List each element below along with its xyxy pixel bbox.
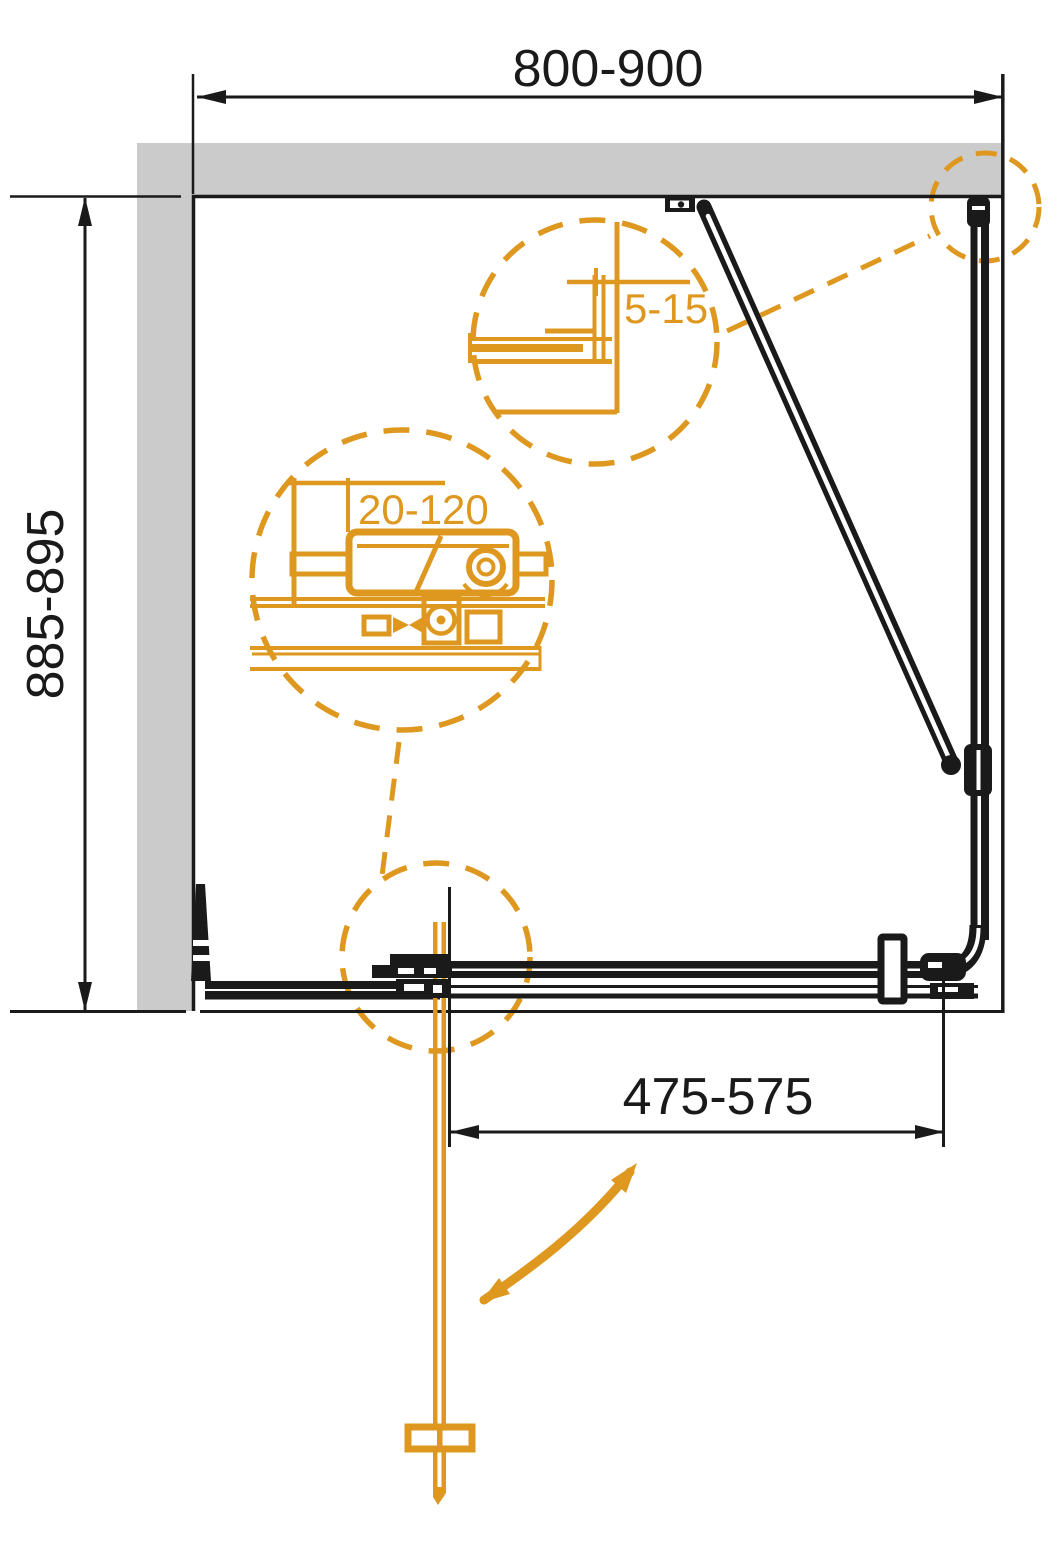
width-dimension-label: 800-900	[513, 40, 704, 98]
technical-drawing-page: 5-15 20-120	[0, 0, 1063, 1545]
door-bottom-tip	[433, 1487, 446, 1505]
wall-gap-dimension-label: 5-15	[624, 285, 708, 332]
door-width-dimension-label: 475-575	[623, 1068, 814, 1126]
panel-top-clamp	[967, 197, 990, 227]
door-swing-arrow	[484, 1172, 630, 1300]
arrowhead-left-icon	[197, 90, 226, 104]
arrowhead-down-icon	[78, 982, 92, 1011]
door-pivot-icon	[941, 755, 961, 775]
top-hinge-bracket	[665, 196, 695, 212]
arrowhead-right-icon	[915, 1125, 944, 1139]
arrowhead-up-icon	[78, 197, 92, 226]
door-open-position	[433, 922, 446, 1487]
roller-wheel-icon	[469, 550, 503, 584]
bottom-rail	[394, 925, 979, 1001]
arrowhead-left-icon	[450, 1125, 479, 1139]
shower-enclosure-plan-drawing: 5-15 20-120	[0, 0, 1063, 1545]
fixed-panel	[964, 197, 992, 940]
rail-hook-bracket	[881, 937, 904, 1001]
top-wall	[137, 143, 1004, 195]
arrowhead-right-icon	[974, 90, 1003, 104]
leader-line-bottom-guide	[381, 742, 399, 884]
glass-door-diagonal	[704, 207, 961, 775]
left-wall	[137, 143, 192, 1011]
adjustment-dimension-label: 20-120	[358, 486, 489, 533]
detail-circle-roller-mechanism	[252, 430, 552, 730]
depth-dimension-label: 885-895	[17, 509, 75, 700]
hinge-pin-icon	[678, 201, 684, 207]
